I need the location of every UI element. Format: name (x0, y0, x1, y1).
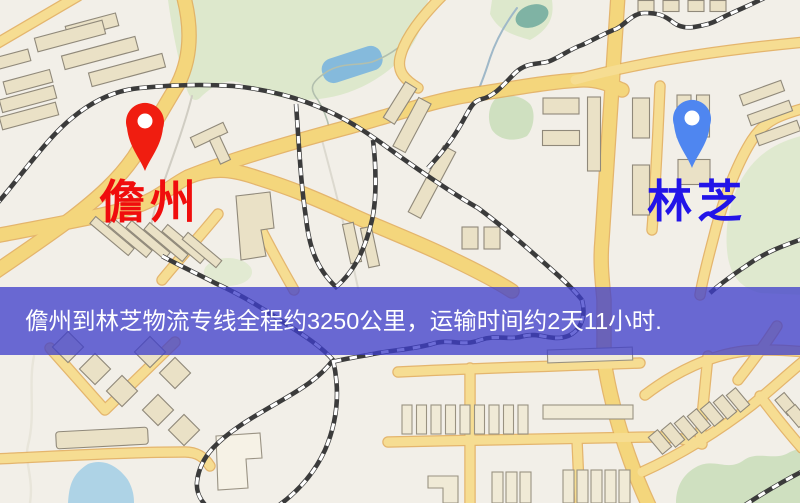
logistics-route-map: 儋州 林芝 儋州到林芝物流专线全程约3250公里，运输时间约2天11小时. (0, 0, 800, 503)
destination-label: 林芝 (647, 176, 747, 227)
route-info-text: 儋州到林芝物流专线全程约3250公里，运输时间约2天11小时. (25, 308, 662, 334)
map-canvas[interactable]: 儋州 林芝 儋州到林芝物流专线全程约3250公里，运输时间约2天11小时. (0, 0, 800, 503)
route-info-banner: 儋州到林芝物流专线全程约3250公里，运输时间约2天11小时. (0, 287, 800, 355)
origin-label: 儋州 (99, 176, 201, 228)
destination-pin-hole (685, 111, 700, 126)
origin-pin-hole (138, 114, 153, 129)
